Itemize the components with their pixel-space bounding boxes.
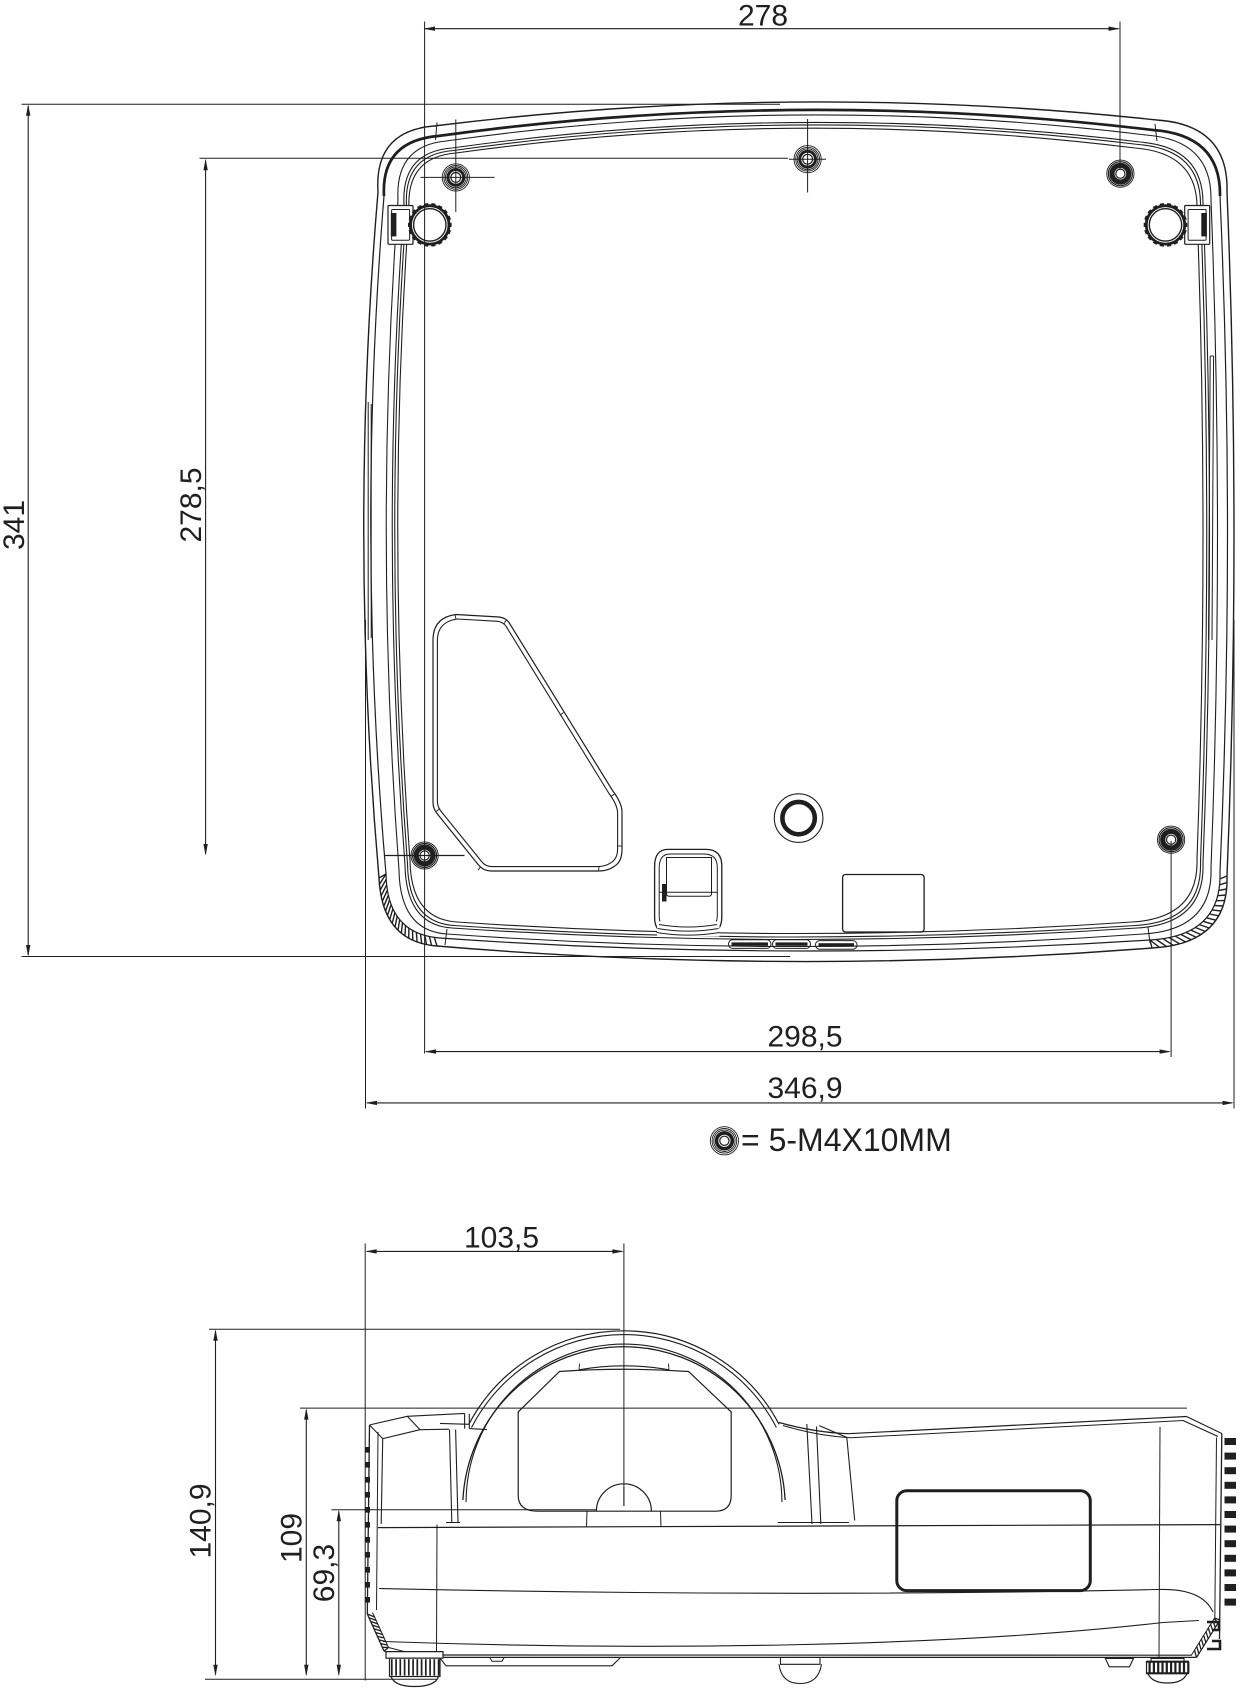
svg-text:140,9: 140,9 [185,1483,218,1558]
svg-text:103,5: 103,5 [464,1222,539,1255]
svg-text:278: 278 [738,0,788,33]
svg-text:346,9: 346,9 [767,1072,842,1105]
svg-text:= 5-M4X10MM: = 5-M4X10MM [741,1122,952,1158]
svg-text:278,5: 278,5 [175,467,208,542]
svg-text:109: 109 [276,1513,309,1563]
svg-text:69,3: 69,3 [308,1544,341,1602]
svg-text:298,5: 298,5 [767,1021,842,1054]
svg-text:341: 341 [0,500,31,550]
